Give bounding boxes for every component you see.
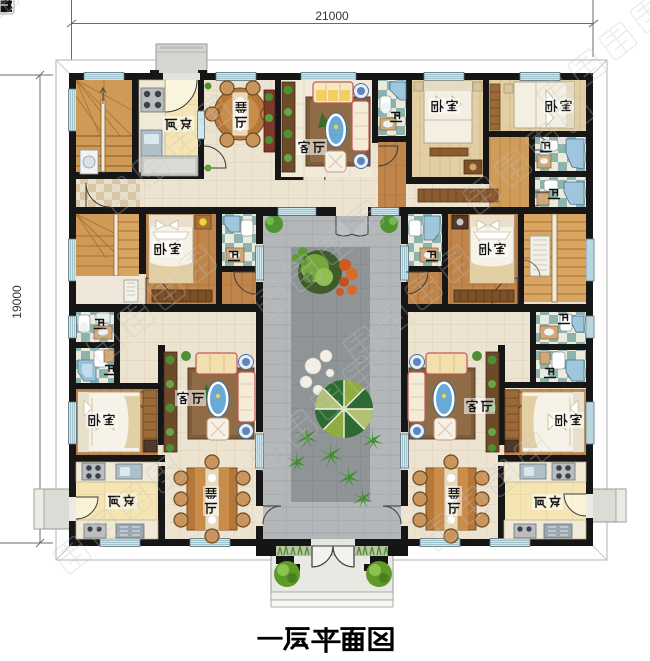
svg-text:21000: 21000	[315, 9, 349, 23]
svg-text:19000: 19000	[10, 285, 24, 319]
